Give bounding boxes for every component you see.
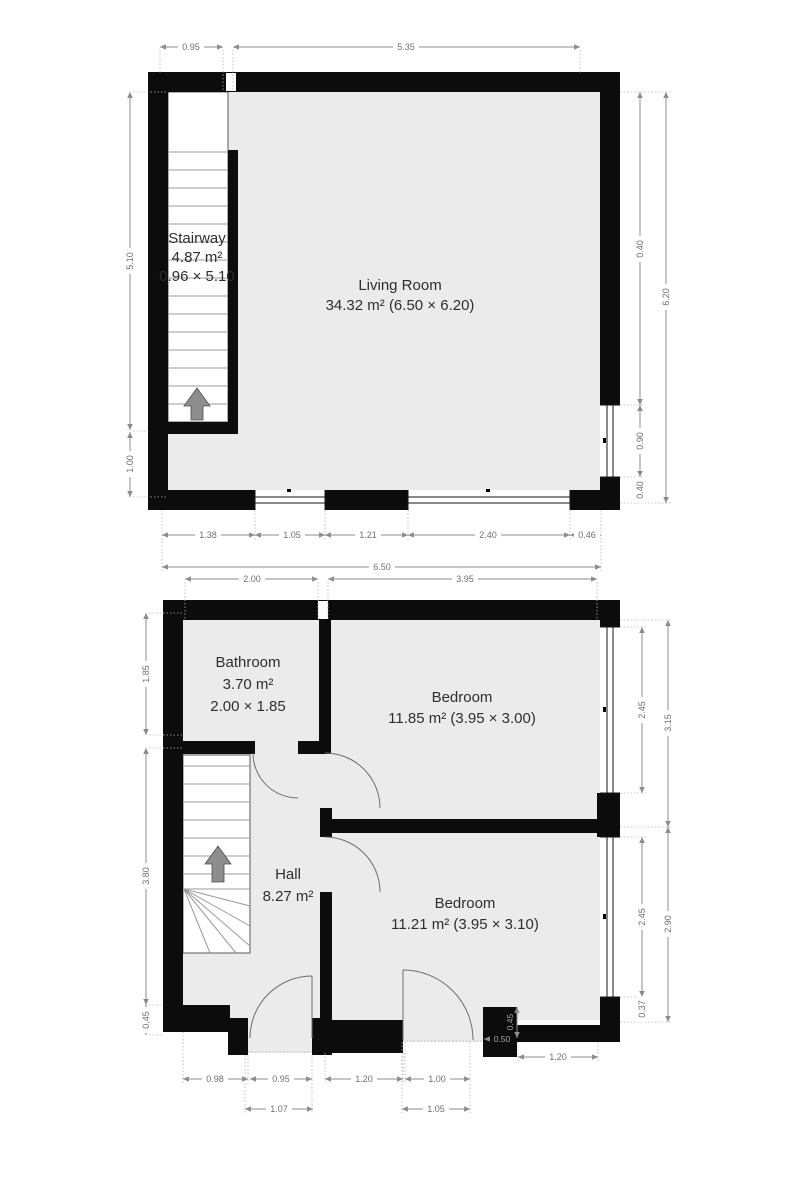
stairway-size: 0.96 × 5.10 [159, 268, 234, 285]
dim-f2-bottom-0: 0.98 [206, 1074, 224, 1084]
dim-f2-top-right: 3.95 [456, 574, 474, 584]
bathroom-size: 2.00 × 1.85 [210, 698, 285, 715]
dim-f2-opening-0: 1.07 [270, 1104, 288, 1114]
bathroom-label: Bathroom [215, 654, 280, 671]
dim-f2-right-section-top: 3.15 [663, 714, 673, 732]
dim-f1-left-upper: 5.10 [125, 252, 135, 270]
dim-f2-left-lower: 0.45 [141, 1011, 151, 1029]
dim-f2-right-step: 0.37 [637, 1000, 647, 1018]
window-f2-bedroom-top [600, 627, 620, 793]
dim-f2-opening-1: 1.05 [427, 1104, 445, 1114]
dim-f2-top-left: 2.00 [243, 574, 261, 584]
dim-f1-bottom-0: 1.38 [199, 530, 217, 540]
dim-f2-bottom-1: 0.95 [272, 1074, 290, 1084]
dim-f2-bottom-3: 1.00 [428, 1074, 446, 1084]
dim-f1-left-lower: 1.00 [125, 455, 135, 473]
dim-f2-right-window-top: 2.45 [637, 701, 647, 719]
floor-plan-page: { "floor1": { "rooms": { "stairway": { "… [0, 0, 797, 1200]
living-room-label: Living Room [358, 277, 441, 294]
dim-f1-top-left: 0.95 [182, 42, 200, 52]
dim-f1-right-total: 6.20 [661, 288, 671, 306]
bathroom-area: 3.70 m² [223, 676, 274, 693]
dim-f1-bottom-4: 0.46 [578, 530, 596, 540]
dim-f1-bottom-3: 2.40 [479, 530, 497, 540]
bedroom-bottom-label: Bedroom [435, 895, 496, 912]
dim-f2-left-mid: 3.80 [141, 867, 151, 885]
dim-f2-right-section-bottom: 2.90 [663, 915, 673, 933]
floor1-plan: Stairway 4.87 m² 0.96 × 5.10 Living Room… [125, 42, 671, 572]
stairway-area: 4.87 m² [172, 249, 223, 266]
front-door-opening-floor [248, 1020, 312, 1053]
dim-f1-right-window: 0.90 [635, 432, 645, 450]
dim-f1-bottom-2: 1.21 [359, 530, 377, 540]
bedroom-top-label: Bedroom [432, 689, 493, 706]
dim-f1-width-total: 6.50 [373, 562, 391, 572]
bedroom-top-detail: 11.85 m² (3.95 × 3.00) [388, 710, 536, 727]
dim-f2-left-upper: 1.85 [141, 665, 151, 683]
stairway-label: Stairway [168, 230, 226, 247]
dim-f1-right-lower: 0.40 [635, 481, 645, 499]
dim-f1-top-main: 5.35 [397, 42, 415, 52]
window-f1-bottom-right [408, 489, 570, 510]
window-f1-bottom-left [255, 489, 325, 510]
dim-f2-step-width: 0.50 [494, 1034, 511, 1044]
floor-plan-canvas: Stairway 4.87 m² 0.96 × 5.10 Living Room… [0, 0, 797, 1200]
floor2-plan: Bathroom 3.70 m² 2.00 × 1.85 Bedroom 11.… [141, 574, 673, 1114]
hall-label: Hall [275, 866, 301, 883]
living-room-detail: 34.32 m² (6.50 × 6.20) [326, 297, 475, 314]
window-f2-bedroom-bottom [600, 837, 620, 997]
dim-f2-bottom-right: 1.20 [549, 1052, 567, 1062]
hall-area: 8.27 m² [263, 888, 314, 905]
dim-f2-bottom-2: 1.20 [355, 1074, 373, 1084]
bedroom-bottom-detail: 11.21 m² (3.95 × 3.10) [391, 916, 539, 933]
dim-f2-right-window-bottom: 2.45 [637, 908, 647, 926]
dim-f2-step-height: 0.45 [505, 1013, 515, 1030]
window-f1-right [600, 405, 620, 477]
dim-f1-right-upper: 0.40 [635, 240, 645, 258]
dim-f1-bottom-1: 1.05 [283, 530, 301, 540]
